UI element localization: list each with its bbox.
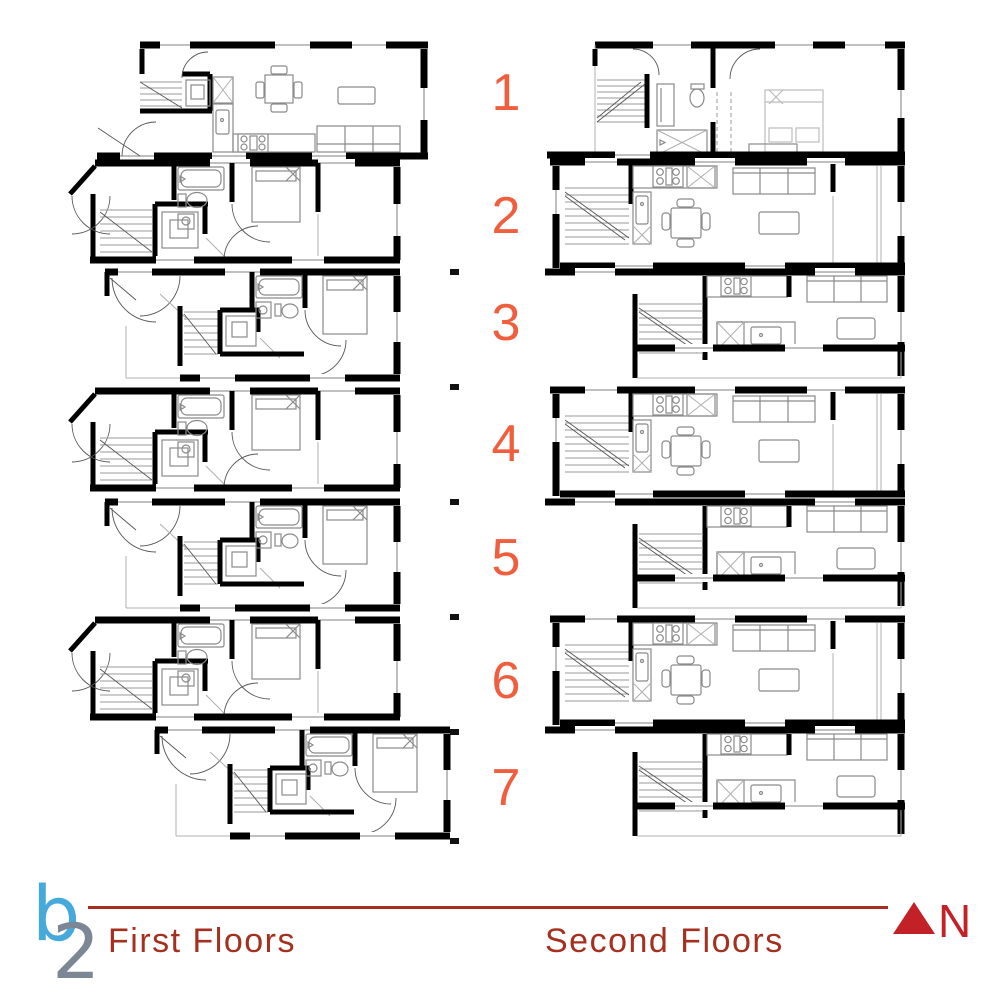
unit-3-first-floor-plan (60, 266, 430, 386)
unit-2-second-floor-plan (545, 152, 915, 277)
unit-1-second-floor-plan (545, 32, 915, 162)
unit-number-7: 7 (478, 762, 534, 814)
unit-7-first-floor-plan (110, 724, 480, 844)
unit-7-second-floor-plan (545, 722, 915, 842)
unit-number-5: 5 (478, 532, 534, 584)
unit-1-first-floor-plan (60, 32, 430, 162)
north-arrow-icon (893, 902, 935, 934)
column-separator-tick (450, 838, 459, 844)
footer-divider-line (88, 906, 888, 909)
logo-letter-2: 2 (52, 907, 100, 982)
north-arrow: N (890, 897, 990, 943)
column-separator-tick (450, 499, 459, 505)
unit-4-second-floor-plan (545, 380, 915, 505)
unit-number-1: 1 (478, 67, 534, 119)
floor-plan-sheet: 1 2 3 4 5 6 7 b 2 First Floors Second Fl… (0, 0, 1000, 1000)
unit-3-second-floor-plan (545, 264, 915, 384)
first-floors-label: First Floors (108, 922, 296, 961)
unit-5-first-floor-plan (60, 496, 430, 616)
unit-number-4: 4 (478, 418, 534, 470)
second-floors-label: Second Floors (545, 922, 784, 961)
north-letter: N (938, 897, 971, 943)
column-separator-tick (450, 729, 459, 735)
column-separator-tick (450, 384, 459, 390)
unit-6-first-floor-plan (60, 609, 430, 729)
unit-5-second-floor-plan (545, 494, 915, 614)
unit-number-6: 6 (478, 655, 534, 707)
unit-number-2: 2 (478, 190, 534, 242)
unit-number-3: 3 (478, 297, 534, 349)
unit-2-first-floor-plan (60, 152, 430, 272)
unit-6-second-floor-plan (545, 609, 915, 734)
column-separator-tick (450, 269, 459, 275)
unit-4-first-floor-plan (60, 380, 430, 500)
column-separator-tick (450, 614, 459, 620)
